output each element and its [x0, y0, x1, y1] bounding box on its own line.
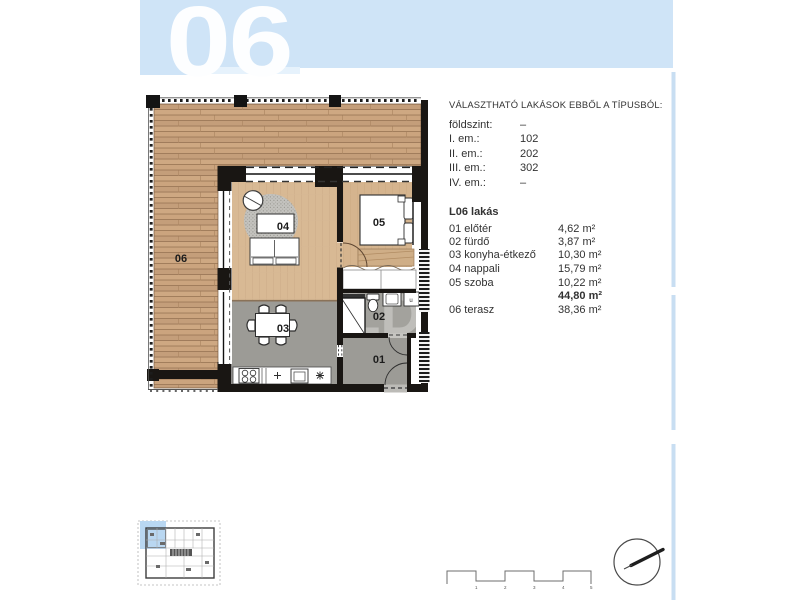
svg-text:06: 06: [175, 253, 187, 265]
svg-text:3: 3: [533, 585, 536, 590]
svg-text:03: 03: [277, 323, 289, 335]
svg-text:4: 4: [562, 585, 565, 590]
svg-text:5: 5: [590, 585, 593, 590]
svg-text:05: 05: [373, 217, 385, 229]
svg-text:2: 2: [504, 585, 507, 590]
svg-text:01: 01: [373, 354, 385, 366]
svg-text:04: 04: [277, 221, 290, 233]
svg-text:02: 02: [373, 311, 385, 323]
svg-text:1: 1: [475, 585, 478, 590]
svg-text:06: 06: [166, 0, 291, 97]
svg-text:u: u: [409, 298, 412, 304]
